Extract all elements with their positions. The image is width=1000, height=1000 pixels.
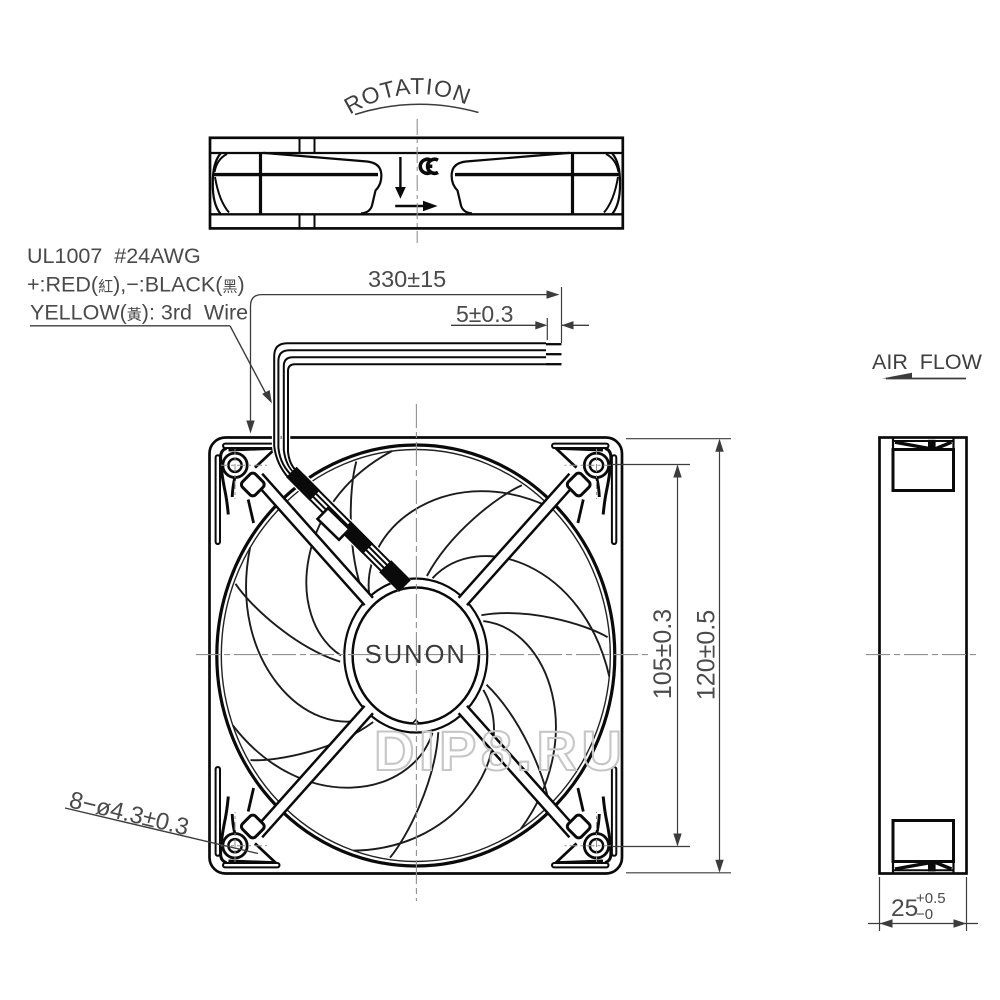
svg-text:120±0.5: 120±0.5 xyxy=(693,610,721,700)
svg-text:AIR FLOW: AIR FLOW xyxy=(872,350,983,374)
svg-text:+0.5: +0.5 xyxy=(916,890,946,907)
svg-text:SUNON: SUNON xyxy=(365,641,467,669)
svg-text:5±0.3: 5±0.3 xyxy=(456,301,513,327)
svg-text:DIP8.RU: DIP8.RU xyxy=(374,719,626,782)
svg-text:−0: −0 xyxy=(916,906,933,923)
svg-text:330±15: 330±15 xyxy=(368,266,446,292)
svg-text:25: 25 xyxy=(891,895,918,922)
svg-text:UL1007 #24AWG: UL1007 #24AWG xyxy=(27,244,201,268)
svg-text:105±0.3: 105±0.3 xyxy=(649,609,677,699)
svg-text:+:RED(紅),−:BLACK(黑): +:RED(紅),−:BLACK(黑) xyxy=(27,273,245,297)
